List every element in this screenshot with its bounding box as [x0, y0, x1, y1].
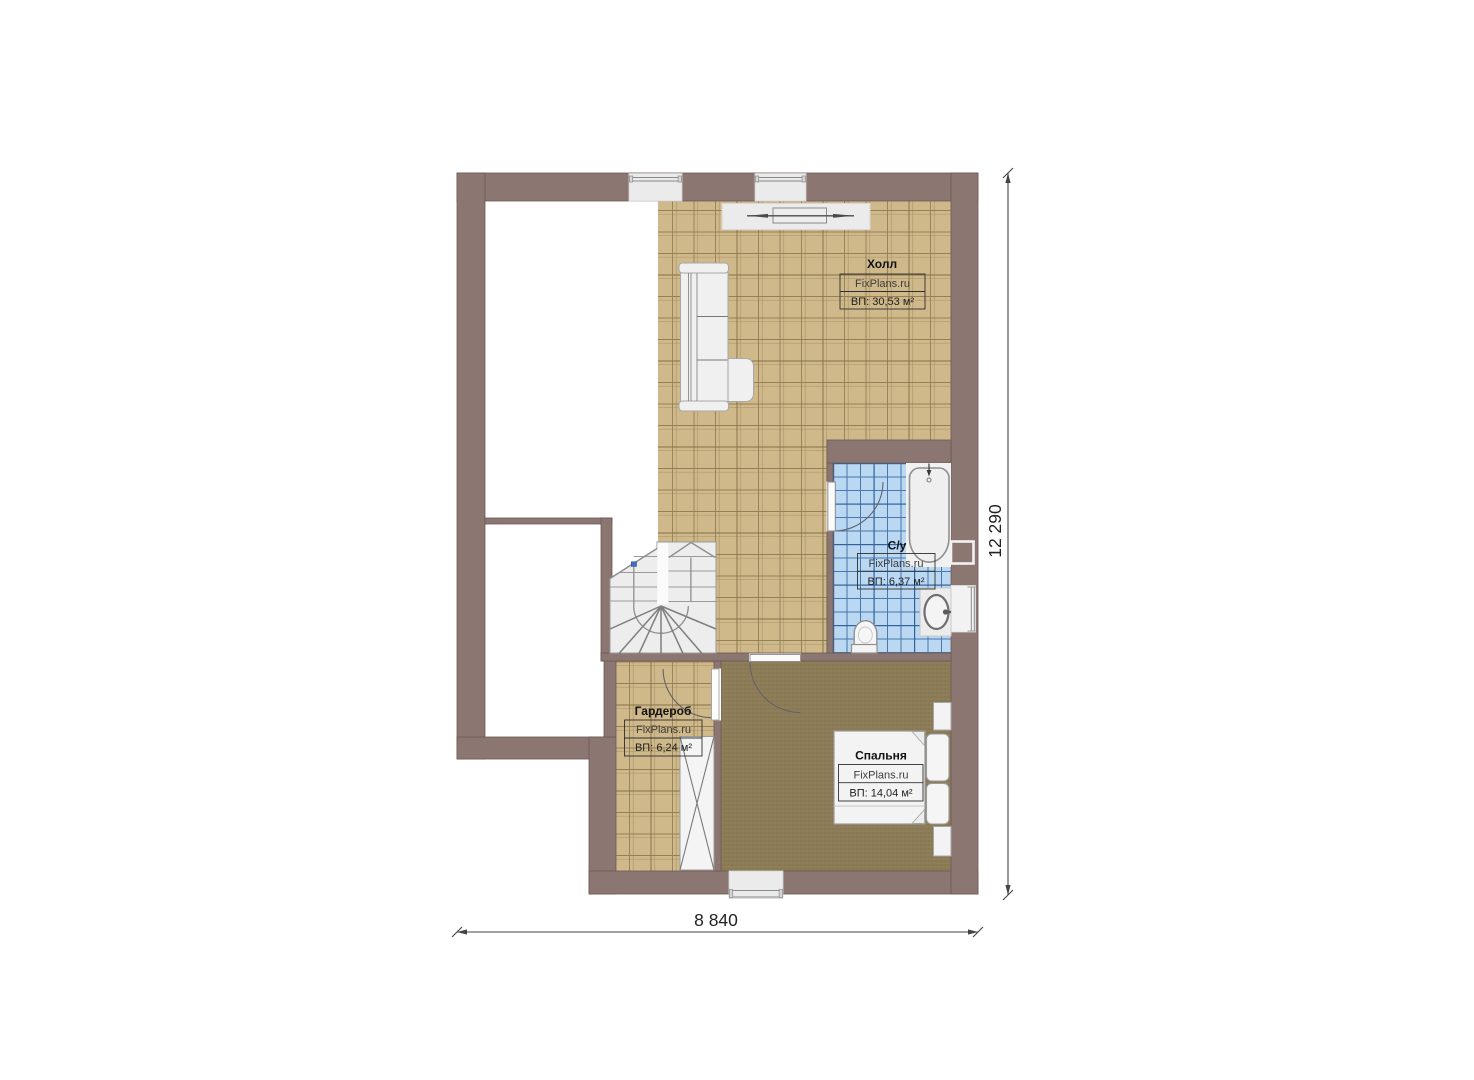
svg-text:12 290: 12 290	[985, 504, 1005, 558]
svg-text:ВП: 6,24 м²: ВП: 6,24 м²	[635, 742, 692, 754]
svg-text:ВП: 6,37 м²: ВП: 6,37 м²	[867, 576, 924, 588]
svg-text:FixPlans.ru: FixPlans.ru	[855, 278, 910, 290]
svg-text:FixPlans.ru: FixPlans.ru	[853, 770, 908, 782]
svg-text:8 840: 8 840	[694, 910, 738, 930]
svg-text:Гардероб: Гардероб	[635, 704, 692, 718]
svg-text:ВП: 30,53 м²: ВП: 30,53 м²	[851, 296, 915, 308]
svg-text:FixPlans.ru: FixPlans.ru	[636, 724, 691, 736]
svg-text:FixPlans.ru: FixPlans.ru	[868, 558, 923, 570]
svg-text:ВП: 14,04 м²: ВП: 14,04 м²	[849, 788, 913, 800]
svg-text:С/у: С/у	[888, 539, 907, 553]
svg-text:Спальня: Спальня	[855, 749, 907, 763]
svg-text:Холл: Холл	[867, 257, 897, 271]
